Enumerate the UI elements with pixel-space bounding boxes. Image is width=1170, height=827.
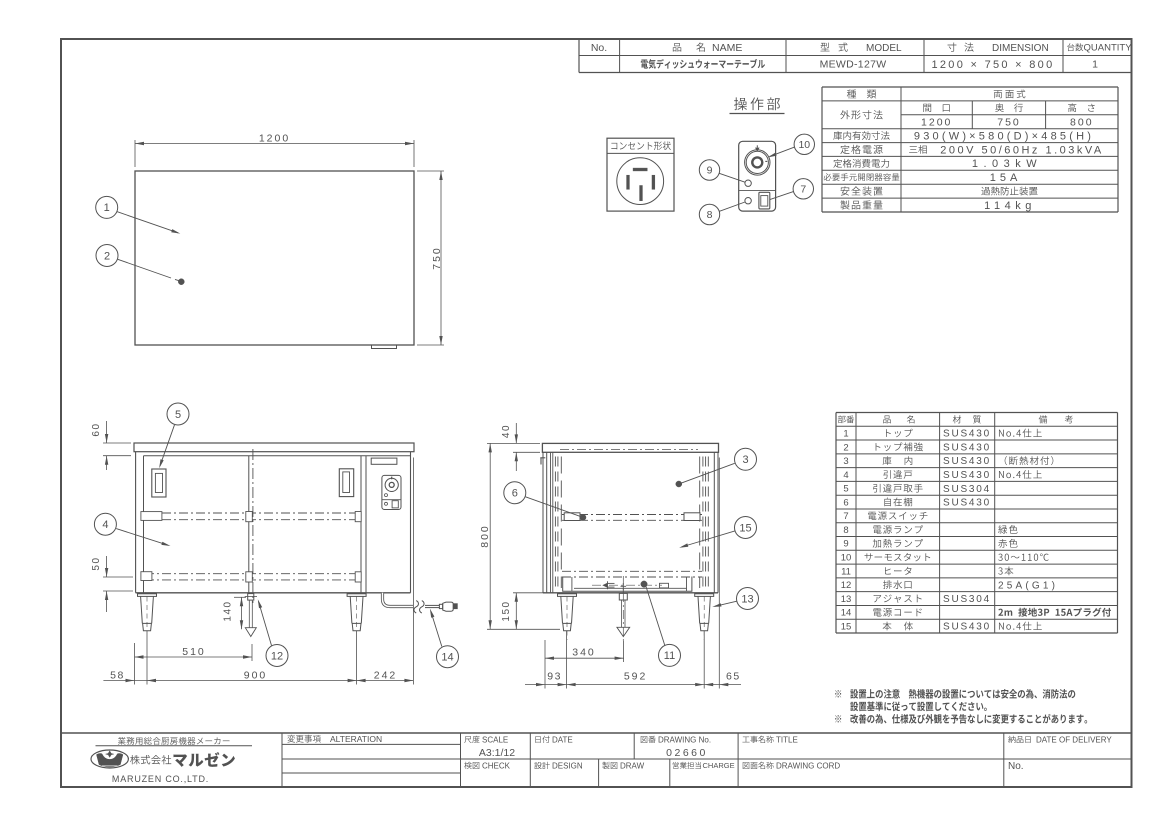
svg-text:150: 150 (501, 600, 512, 621)
svg-text:930(W)×580(D)×485(H): 930(W)×580(D)×485(H) (914, 130, 1094, 142)
svg-text:CHECK: CHECK (482, 761, 511, 770)
svg-text:11: 11 (841, 566, 851, 577)
svg-text:114kg: 114kg (984, 200, 1036, 212)
svg-text:SUS430: SUS430 (943, 470, 991, 481)
svg-text:7: 7 (843, 511, 848, 522)
svg-text:8: 8 (843, 525, 848, 536)
svg-text:A3:1/12: A3:1/12 (479, 747, 515, 759)
svg-text:9: 9 (707, 165, 713, 177)
svg-text:SUS430: SUS430 (943, 456, 991, 467)
svg-text:4: 4 (102, 519, 108, 531)
svg-text:40: 40 (501, 424, 512, 438)
svg-text:15: 15 (841, 621, 852, 632)
svg-text:9: 9 (843, 539, 848, 550)
svg-text:1: 1 (104, 202, 110, 214)
svg-text:13: 13 (841, 594, 852, 605)
svg-text:58: 58 (110, 670, 125, 682)
svg-text:60: 60 (91, 422, 102, 436)
svg-text:8: 8 (707, 209, 713, 221)
svg-text:ALTERATION: ALTERATION (330, 734, 382, 744)
svg-text:800: 800 (1070, 117, 1094, 129)
svg-text:12: 12 (841, 580, 852, 591)
svg-text:1200: 1200 (921, 117, 952, 129)
svg-text:02660: 02660 (666, 747, 708, 759)
svg-text:1200: 1200 (259, 133, 290, 145)
svg-text:SUS430: SUS430 (943, 498, 991, 509)
svg-text:510: 510 (182, 646, 206, 658)
svg-text:11: 11 (664, 650, 675, 662)
svg-text:DATE OF DELIVERY: DATE OF DELIVERY (1036, 735, 1112, 744)
svg-text:1200 × 750 × 800: 1200 × 750 × 800 (931, 59, 1054, 71)
svg-text:2: 2 (104, 250, 110, 262)
svg-text:592: 592 (624, 671, 648, 683)
svg-text:10: 10 (841, 553, 852, 564)
svg-text:No.: No. (591, 42, 607, 54)
svg-text:5: 5 (175, 409, 181, 421)
svg-text:4: 4 (843, 470, 848, 481)
svg-text:800: 800 (479, 524, 491, 548)
svg-text:13: 13 (741, 593, 753, 605)
svg-text:6: 6 (512, 488, 518, 500)
svg-text:340: 340 (572, 647, 596, 659)
svg-text:SCALE: SCALE (482, 735, 508, 744)
svg-text:7: 7 (800, 184, 806, 196)
svg-text:200V 50/60Hz 1.03kVA: 200V 50/60Hz 1.03kVA (940, 144, 1104, 156)
svg-text:DRAWING CORD: DRAWING CORD (776, 761, 840, 770)
svg-text:TITLE: TITLE (776, 735, 798, 744)
svg-text:750: 750 (431, 246, 443, 270)
svg-text:15: 15 (739, 522, 751, 534)
svg-text:12: 12 (271, 650, 283, 662)
svg-text:6: 6 (843, 497, 848, 508)
svg-text:MODEL: MODEL (866, 43, 902, 54)
svg-text:65: 65 (726, 671, 741, 683)
svg-text:2: 2 (843, 442, 848, 453)
svg-text:QUANTITY: QUANTITY (1084, 43, 1133, 54)
svg-text:14: 14 (441, 652, 453, 664)
svg-text:MEWD-127W: MEWD-127W (820, 59, 887, 71)
svg-text:10: 10 (798, 139, 810, 151)
svg-text:242: 242 (374, 670, 398, 682)
svg-text:DATE: DATE (552, 735, 573, 744)
svg-text:14: 14 (841, 608, 852, 619)
svg-text:No.: No. (1008, 761, 1024, 772)
svg-text:93: 93 (547, 671, 562, 683)
svg-text:5: 5 (843, 484, 848, 495)
svg-text:25A(G1): 25A(G1) (998, 580, 1058, 591)
svg-text:3: 3 (843, 456, 848, 467)
svg-text:SUS430: SUS430 (943, 622, 991, 633)
svg-text:SUS304: SUS304 (943, 594, 991, 605)
svg-text:DIMENSION: DIMENSION (992, 43, 1049, 54)
svg-text:750: 750 (997, 117, 1021, 129)
svg-text:900: 900 (244, 670, 268, 682)
svg-text:DRAW: DRAW (620, 761, 645, 770)
svg-text:50: 50 (91, 556, 102, 570)
svg-text:CHARGE: CHARGE (703, 761, 735, 770)
svg-text:SUS304: SUS304 (943, 484, 991, 495)
svg-text:1: 1 (1092, 59, 1098, 71)
svg-text:1.03kW: 1.03kW (972, 158, 1042, 170)
svg-text:15A: 15A (990, 172, 1022, 184)
svg-text:SUS430: SUS430 (943, 429, 991, 440)
svg-text:DRAWING No.: DRAWING No. (658, 735, 711, 744)
svg-text:DESIGN: DESIGN (552, 761, 583, 770)
svg-text:3: 3 (742, 454, 748, 466)
svg-text:SUS430: SUS430 (943, 443, 991, 454)
svg-text:NAME: NAME (712, 42, 742, 54)
svg-text:1: 1 (843, 429, 848, 440)
svg-text:MARUZEN CO.,LTD.: MARUZEN CO.,LTD. (112, 774, 209, 784)
svg-text:140: 140 (223, 600, 234, 621)
